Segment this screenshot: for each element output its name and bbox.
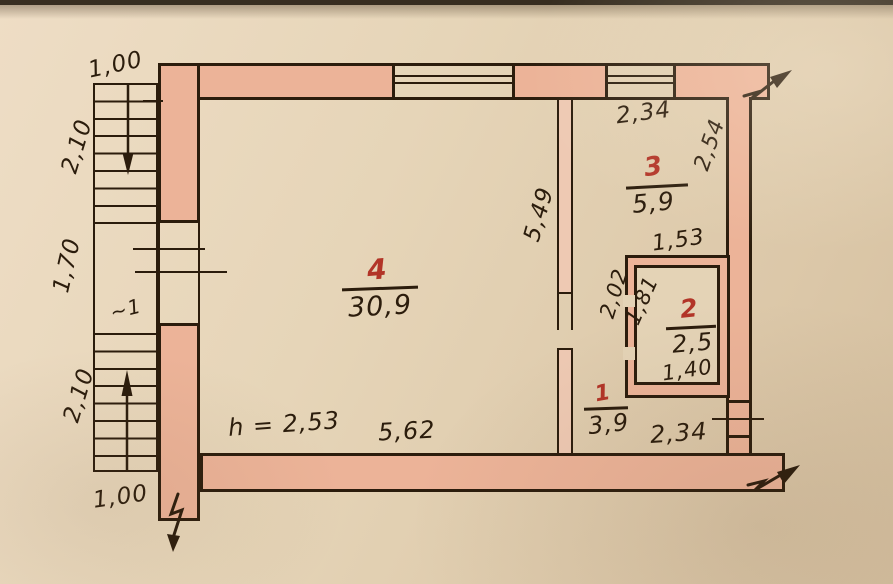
dim-room4-width: 5,62 bbox=[377, 418, 436, 445]
break-mark-bottom-left bbox=[162, 494, 198, 556]
room2-number: 2 bbox=[679, 295, 700, 322]
room1-area: 3,9 bbox=[587, 410, 630, 438]
dim-stair-landing: 1,70 bbox=[50, 236, 85, 295]
window-right bbox=[608, 63, 673, 100]
room2-door-gap bbox=[623, 347, 635, 360]
door-jamb-line bbox=[158, 223, 160, 323]
dim-partition-length: 5,49 bbox=[521, 185, 558, 244]
room3-area: 5,9 bbox=[631, 188, 676, 217]
photo-edge bbox=[0, 0, 893, 5]
floor-plan: 4 30,9 3 5,9 2 2,5 1 3,9 1,00 2,10 1,70 … bbox=[0, 0, 893, 584]
dim-stair-flight-top: 2,10 bbox=[59, 117, 97, 177]
ceiling-height-label: h = 2,53 bbox=[227, 408, 340, 440]
partition-wall-lower bbox=[557, 348, 573, 453]
partition-wall-upper bbox=[557, 100, 573, 292]
room4-number: 4 bbox=[366, 255, 389, 285]
left-wall-upper bbox=[158, 63, 200, 223]
dim-room2-outer-width: 1,53 bbox=[651, 226, 707, 255]
partition-door-jambs bbox=[557, 292, 573, 330]
break-mark-top-right bbox=[744, 62, 804, 110]
vent-hatch-line bbox=[726, 435, 752, 438]
dim-stair-width-top: 1,00 bbox=[86, 49, 145, 83]
dimension-line bbox=[712, 418, 764, 420]
room4-area: 30,9 bbox=[347, 291, 412, 321]
room2-area: 2,5 bbox=[671, 329, 714, 356]
stair-direction-arrow-down bbox=[119, 85, 137, 177]
break-mark-bottom-right bbox=[748, 455, 812, 507]
door-jamb-line bbox=[198, 223, 200, 323]
dim-bottom-right-width: 2,34 bbox=[649, 419, 708, 447]
vent-hatch-line bbox=[726, 400, 752, 403]
window-left bbox=[395, 63, 512, 100]
stair-direction-arrow-up bbox=[118, 370, 136, 472]
dim-room3-width: 2,34 bbox=[615, 99, 673, 129]
dim-stair-width-bottom: 1,00 bbox=[92, 482, 150, 512]
bottom-wall bbox=[200, 453, 785, 492]
room1-number: 1 bbox=[593, 382, 613, 406]
top-wall-segment-mid bbox=[512, 63, 608, 100]
room3-number: 3 bbox=[642, 153, 665, 181]
left-wall-lower bbox=[158, 323, 200, 521]
photo-shadow bbox=[0, 5, 893, 19]
dim-room3-depth: 2,54 bbox=[691, 116, 729, 173]
